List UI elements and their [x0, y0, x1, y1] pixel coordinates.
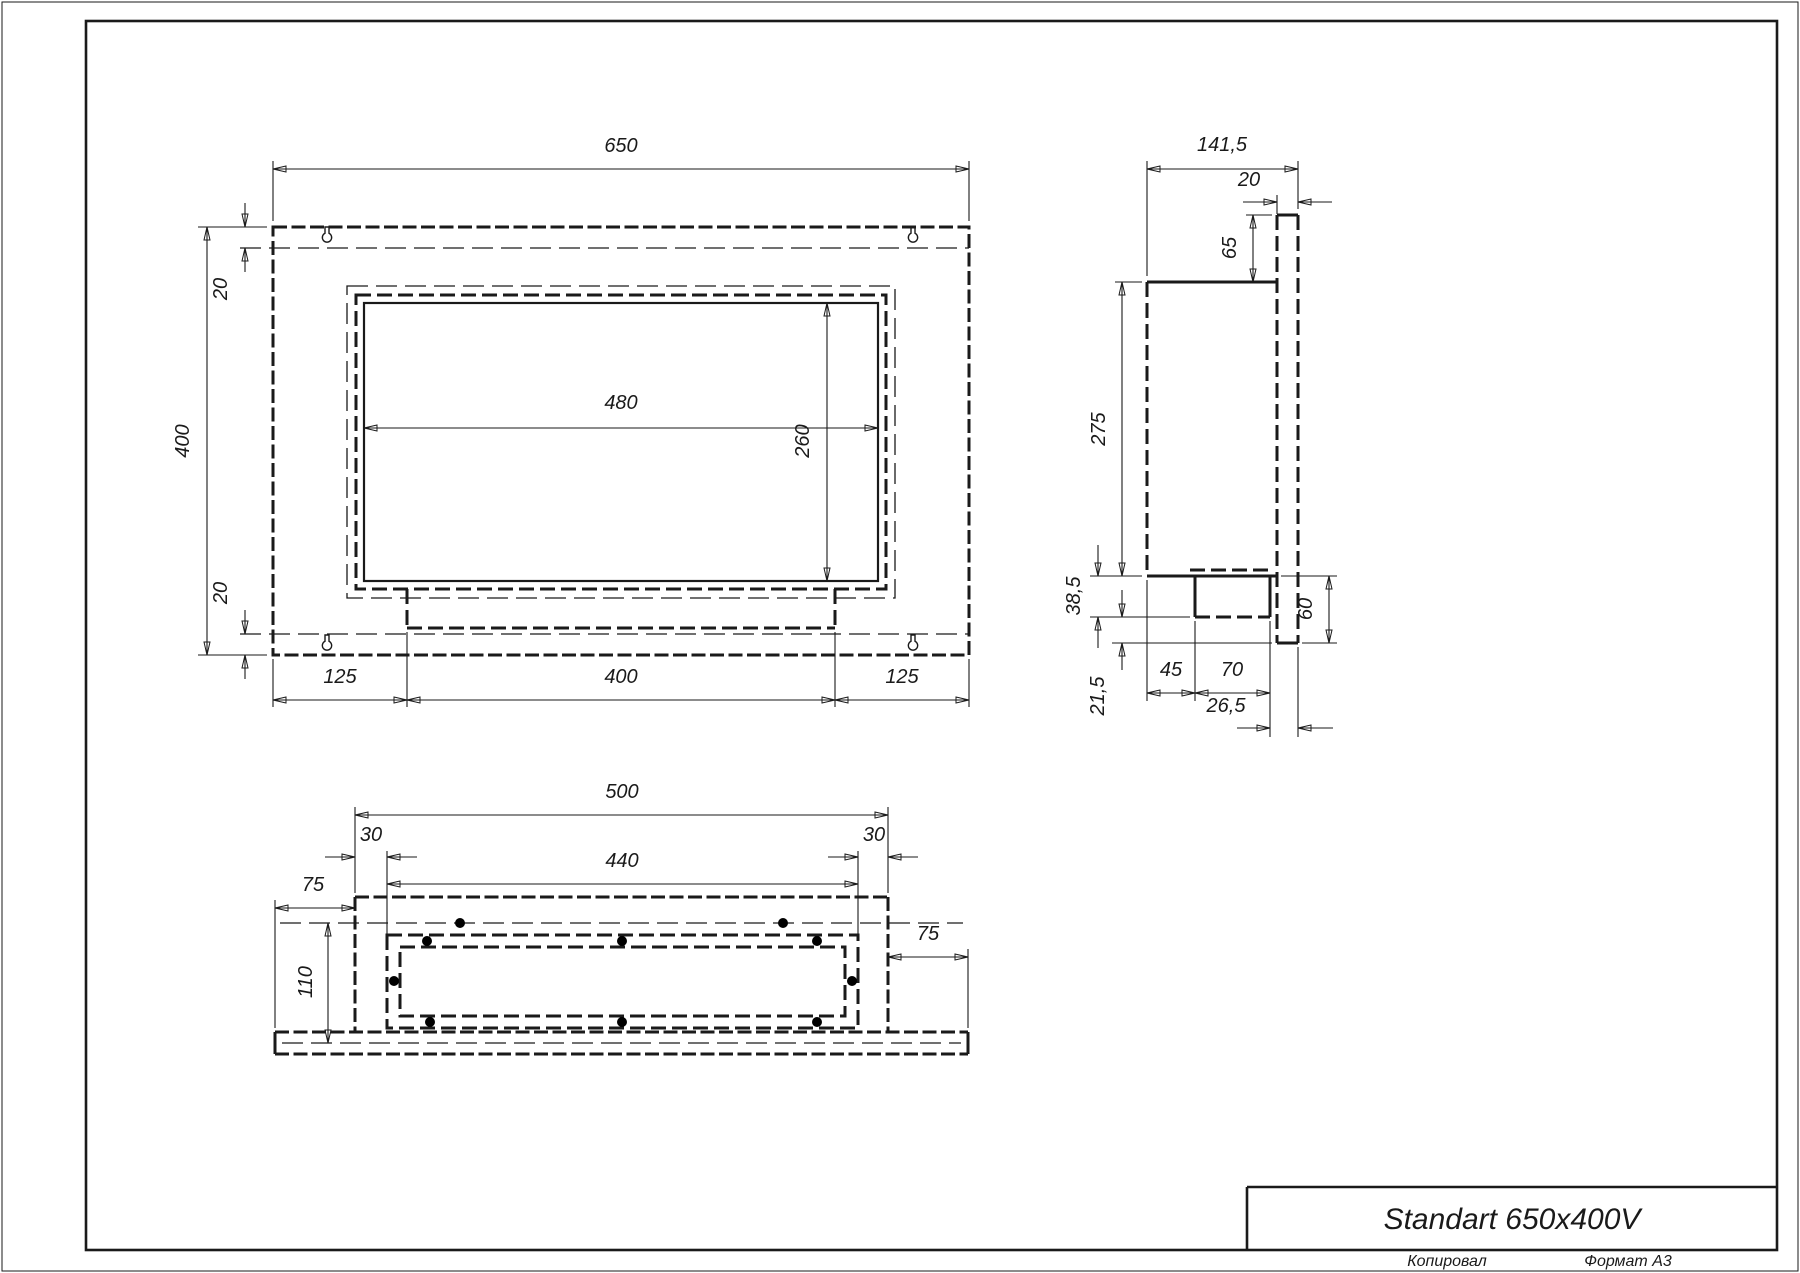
dim-side-plate-thickness: 20: [1237, 169, 1260, 191]
keyhole-slot-icon: [322, 227, 331, 242]
dim-front-opening-height: 260: [792, 424, 814, 458]
dim-front-flange-top: 20: [210, 278, 232, 301]
dim-bottom-offset-left: 30: [360, 824, 382, 846]
keyhole-slot-icon: [908, 635, 917, 650]
dim-bottom-body-width: 500: [605, 781, 638, 803]
format-label: Формат А3: [1584, 1253, 1672, 1270]
dim-bottom-inner-width: 440: [605, 850, 638, 872]
dim-side-body-height: 275: [1088, 411, 1110, 446]
dim-side-bottom-gap: 21,5: [1087, 676, 1109, 717]
dim-front-bottom-center: 400: [604, 666, 637, 688]
front-dimension-lines: [198, 161, 969, 707]
dim-side-tray-drop: 38,5: [1063, 576, 1085, 616]
keyhole-slot-icon: [908, 227, 917, 242]
side-dimension-lines: [1090, 161, 1337, 737]
drawing-frame: [86, 21, 1777, 1250]
bottom-view: 500 30 440 30 75 110 75: [275, 781, 968, 1054]
dim-front-flange-bottom: 20: [210, 582, 232, 605]
copied-label: Копировал: [1407, 1253, 1487, 1270]
keyhole-slot-icon: [322, 635, 331, 650]
dim-side-plate-below: 60: [1295, 598, 1317, 620]
technical-drawing: 650 400 20 20 480 260 125 400 125: [0, 0, 1800, 1273]
drawing-title: Standart 650x400V: [1384, 1203, 1644, 1236]
dim-front-bottom-left: 125: [323, 666, 357, 688]
dim-bottom-flange-left: 75: [302, 874, 325, 896]
dim-side-top-offset: 65: [1219, 236, 1241, 259]
bottom-inner-mid-dashed: [400, 947, 845, 1016]
dim-bottom-inner-depth: 110: [295, 966, 317, 998]
dim-side-tray-front: 45: [1160, 659, 1183, 681]
dim-side-tray-width: 70: [1221, 659, 1243, 681]
side-view: 141,5 20 65 275 38,5 21,5 45 70 26,5 60: [1063, 134, 1337, 737]
dim-bottom-flange-right: 75: [917, 923, 940, 945]
title-block: Standart 650x400V: [1247, 1187, 1777, 1250]
front-view: 650 400 20 20 480 260 125 400 125: [172, 135, 969, 707]
dim-front-width: 650: [604, 135, 637, 157]
bottom-inner-outer-dashed: [387, 935, 858, 1028]
dim-side-depth: 141,5: [1197, 134, 1248, 156]
page-border: [2, 2, 1798, 1271]
front-outer-panel: [273, 227, 969, 655]
dim-bottom-offset-right: 30: [863, 824, 885, 846]
dim-front-opening-width: 480: [604, 392, 637, 414]
dim-side-tray-back: 26,5: [1206, 695, 1247, 717]
dim-front-height: 400: [172, 424, 194, 457]
drawing-sheet: 650 400 20 20 480 260 125 400 125: [0, 0, 1800, 1273]
dim-front-bottom-right: 125: [885, 666, 919, 688]
